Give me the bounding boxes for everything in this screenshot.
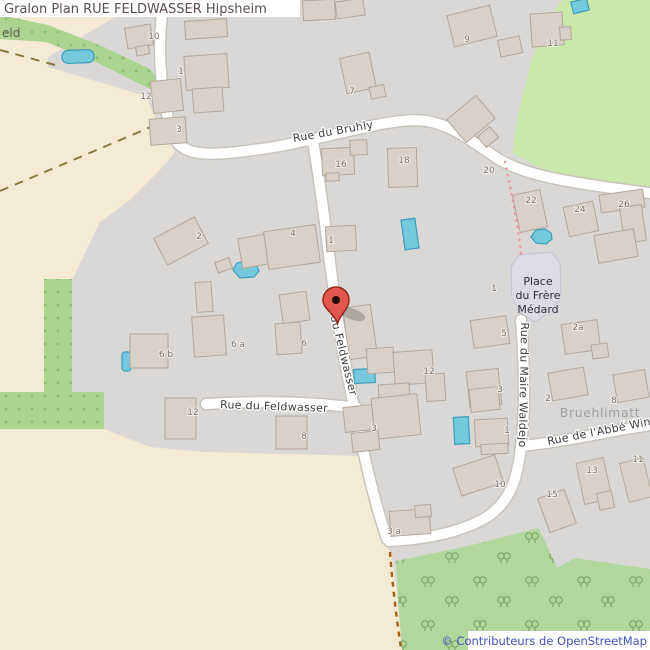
housenumber: 3	[371, 424, 377, 434]
housenumber: 12	[140, 92, 151, 102]
housenumber: 24	[574, 205, 586, 215]
place-frere-medard-line2: du Frère	[515, 289, 560, 302]
housenumber: 3	[497, 385, 503, 395]
housenumber: 13	[586, 466, 597, 476]
housenumber: 1	[491, 284, 497, 294]
housenumber: 3 a	[387, 527, 401, 537]
housenumber: 10	[494, 480, 506, 490]
housenumber: 20	[483, 166, 495, 176]
housenumber: 12	[187, 408, 198, 418]
housenumber: 6 b	[159, 350, 174, 360]
housenumber: 22	[525, 196, 536, 206]
map[interactable]: Rue du Bruhly Rue du Feldwasser Rue du F…	[0, 0, 650, 650]
housenumber: 6	[301, 339, 307, 349]
housenumber: 11	[632, 455, 643, 465]
housenumber: 1	[504, 426, 510, 436]
attribution-link[interactable]: © Contributeurs de OpenStreetMap	[441, 634, 647, 648]
housenumber: 3	[176, 125, 182, 135]
housenumber: 26	[618, 200, 630, 210]
title-bar: Gralon Plan RUE FELDWASSER Hipsheim	[0, 0, 300, 17]
housenumber: 10	[148, 32, 160, 42]
housenumber: 1	[178, 67, 184, 77]
housenumber: 11	[547, 39, 558, 49]
attribution-bar: © Contributeurs de OpenStreetMap	[441, 631, 650, 650]
place-frere-medard-line3: Médard	[517, 303, 558, 316]
housenumber: 18	[398, 156, 410, 166]
pin-dot	[332, 296, 340, 304]
housenumber: 2	[545, 394, 551, 404]
area-label-bruehlimatt: Bruehlimatt	[560, 405, 640, 420]
housenumber: 9	[464, 35, 470, 45]
housenumber: 1	[328, 236, 334, 246]
housenumber: 6 a	[231, 340, 245, 350]
page-title: Gralon Plan RUE FELDWASSER Hipsheim	[4, 2, 267, 17]
housenumber: 16	[335, 160, 347, 170]
map-background	[0, 0, 650, 650]
housenumber: 4	[290, 229, 296, 239]
housenumber: 8	[301, 432, 307, 442]
housenumber: 8	[611, 396, 617, 406]
area-label-partial: eld	[2, 26, 20, 40]
housenumber: 12	[423, 367, 434, 377]
housenumber: 2a	[572, 323, 583, 333]
housenumber: 2	[196, 232, 202, 242]
housenumber: 7	[349, 87, 355, 97]
housenumber: 5	[501, 329, 507, 339]
housenumber: 15	[546, 490, 557, 500]
place-frere-medard-line1: Place	[523, 275, 552, 288]
street-label-waldejo: Rue du Maire Waldejo	[516, 322, 531, 447]
